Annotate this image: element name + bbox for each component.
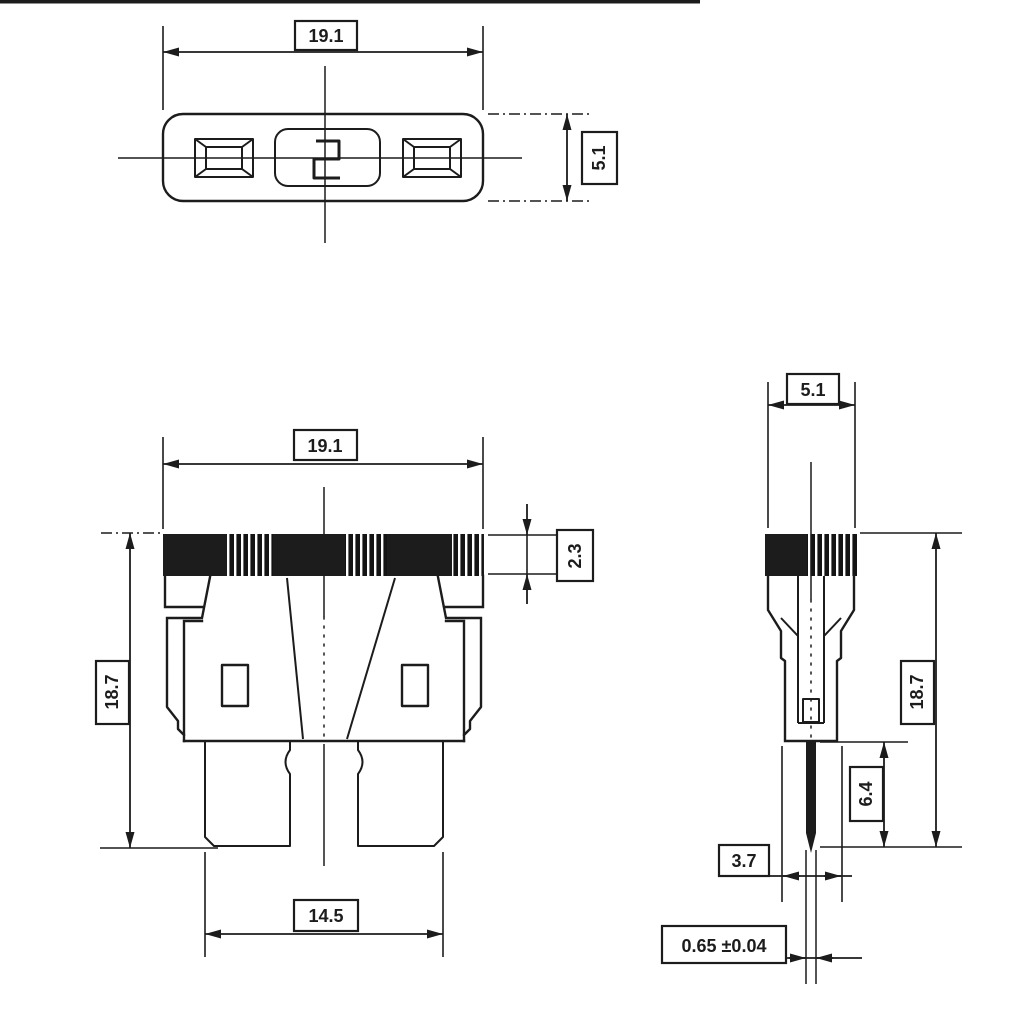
fuse-element-glyph [314,141,340,178]
dim-front-height-label: 18.7 [102,674,122,709]
dim-side-blade-thickness: 0.65 ±0.04 [662,926,862,963]
dim-side-depth: 3.7 [719,845,852,876]
front-view: 19.1 2.3 [96,430,593,957]
fuse-dimension-drawing: 19.1 5.1 19.1 [0,0,1024,1024]
front-left-window [222,665,248,706]
top-border-line [0,0,700,4]
dim-side-depth-label: 3.7 [731,851,756,871]
front-left-blade [205,741,290,846]
dim-top-height-label: 5.1 [589,145,609,170]
dim-top-width: 19.1 [163,21,483,110]
drawing-canvas: 19.1 5.1 19.1 [0,0,1024,1024]
dim-top-width-label: 19.1 [308,26,343,46]
dim-front-cap-height-label: 2.3 [565,543,585,568]
front-right-blade [358,741,443,846]
dim-front-height: 18.7 [96,533,218,848]
dim-front-blade-span: 14.5 [205,852,443,957]
side-view: 5.1 [662,374,962,984]
side-blade [806,741,816,984]
dim-side-blade-thickness-label: 0.65 ±0.04 [682,936,767,956]
dim-side-height-label: 18.7 [907,674,927,709]
dim-front-width: 19.1 [163,430,483,529]
dim-front-width-label: 19.1 [307,436,342,456]
dim-side-blade-length-label: 6.4 [856,781,876,806]
top-view: 19.1 5.1 [118,21,617,243]
front-right-window [402,665,428,706]
dim-front-cap-height: 2.3 [488,504,593,604]
dim-side-width-label: 5.1 [800,380,825,400]
dim-side-blade-length: 6.4 [820,742,908,847]
dim-front-blade-span-label: 14.5 [308,906,343,926]
